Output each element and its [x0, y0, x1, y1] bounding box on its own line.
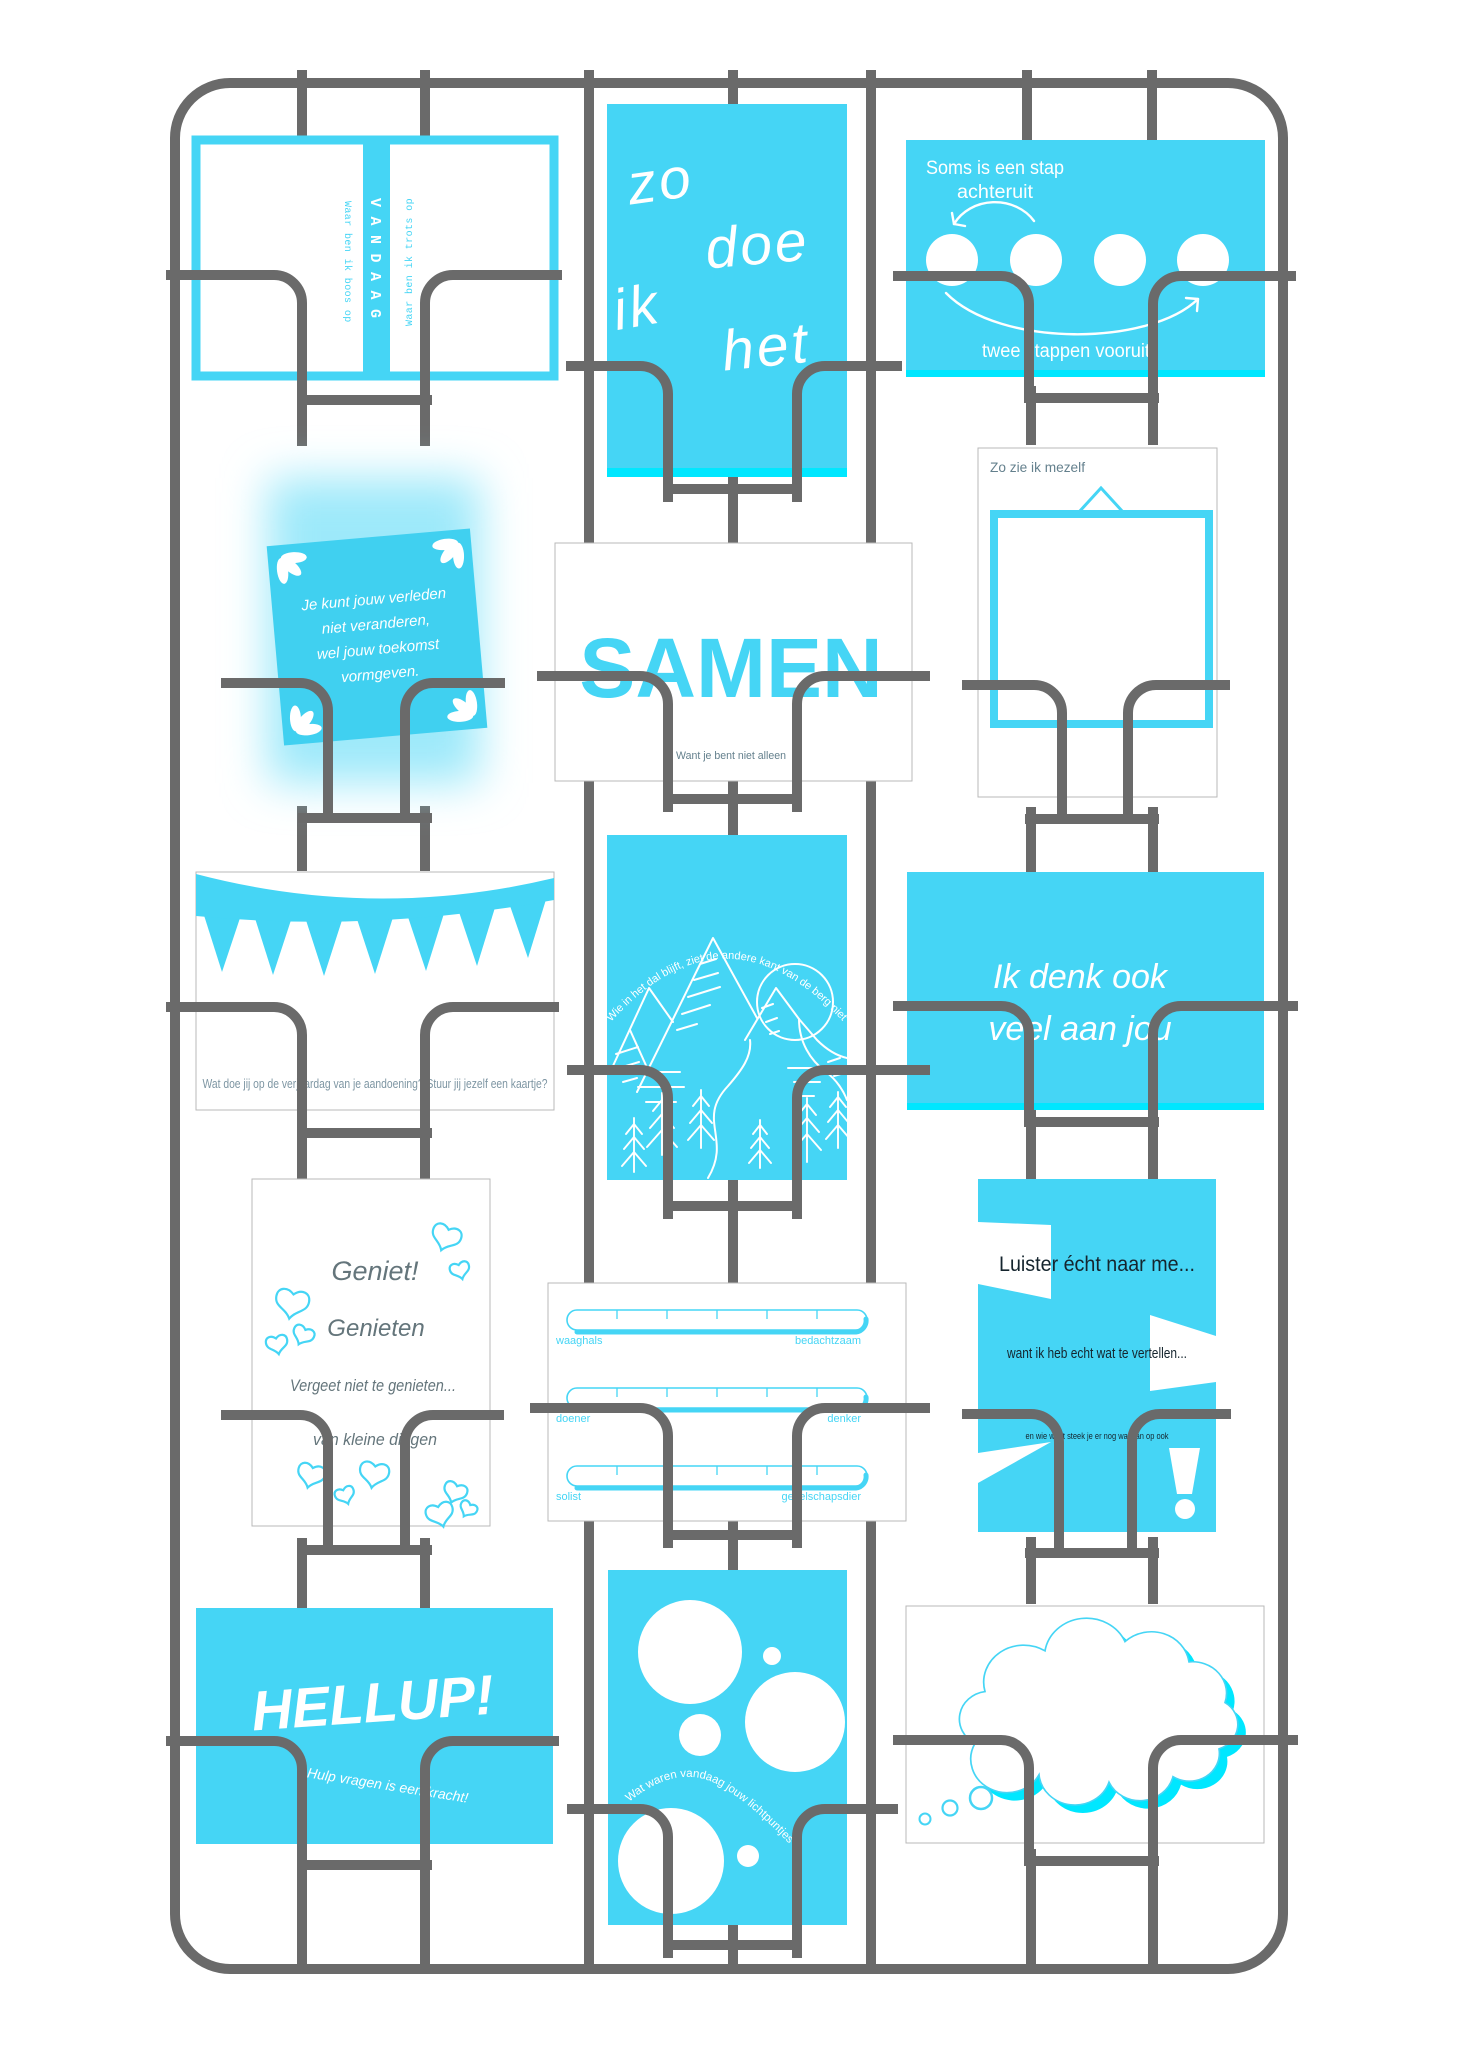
- svg-text:Wat doe jij op de verjaardag v: Wat doe jij op de verjaardag van je aand…: [203, 1077, 548, 1091]
- svg-text:SAMEN: SAMEN: [579, 621, 882, 715]
- svg-text:Waar ben ik trots op: Waar ben ik trots op: [404, 198, 416, 326]
- svg-text:bedachtzaam: bedachtzaam: [795, 1335, 861, 1347]
- svg-text:solist: solist: [556, 1491, 581, 1503]
- svg-text:VANDAAG: VANDAAG: [366, 198, 383, 328]
- svg-text:Geniet!: Geniet!: [331, 1256, 419, 1286]
- svg-text:Want je bent niet alleen: Want je bent niet alleen: [676, 750, 786, 762]
- svg-text:het: het: [719, 311, 813, 384]
- svg-text:doener: doener: [556, 1413, 591, 1425]
- svg-text:Vergeet niet te genieten...: Vergeet niet te genieten...: [290, 1376, 456, 1395]
- svg-text:Luister écht naar me...: Luister écht naar me...: [999, 1253, 1195, 1276]
- svg-text:zo: zo: [622, 145, 697, 218]
- svg-text:Genieten: Genieten: [327, 1315, 424, 1342]
- svg-text:want ik heb echt wat te vertel: want ik heb echt wat te vertellen...: [1006, 1346, 1187, 1362]
- svg-text:en wie weet steek je er nog wa: en wie weet steek je er nog wat van op o…: [1026, 1431, 1169, 1441]
- svg-text:twee stappen vooruit: twee stappen vooruit: [982, 341, 1151, 362]
- svg-text:Waar ben ik boos op: Waar ben ik boos op: [341, 201, 353, 323]
- svg-text:achteruit: achteruit: [957, 182, 1034, 203]
- svg-text:waaghals: waaghals: [555, 1335, 603, 1347]
- svg-text:Ik denk ook: Ik denk ook: [993, 958, 1169, 996]
- svg-text:Zo zie ik mezelf: Zo zie ik mezelf: [990, 460, 1085, 475]
- svg-text:denker: denker: [827, 1413, 861, 1425]
- svg-text:Soms is een stap: Soms is een stap: [926, 158, 1064, 179]
- svg-text:doe: doe: [703, 209, 812, 282]
